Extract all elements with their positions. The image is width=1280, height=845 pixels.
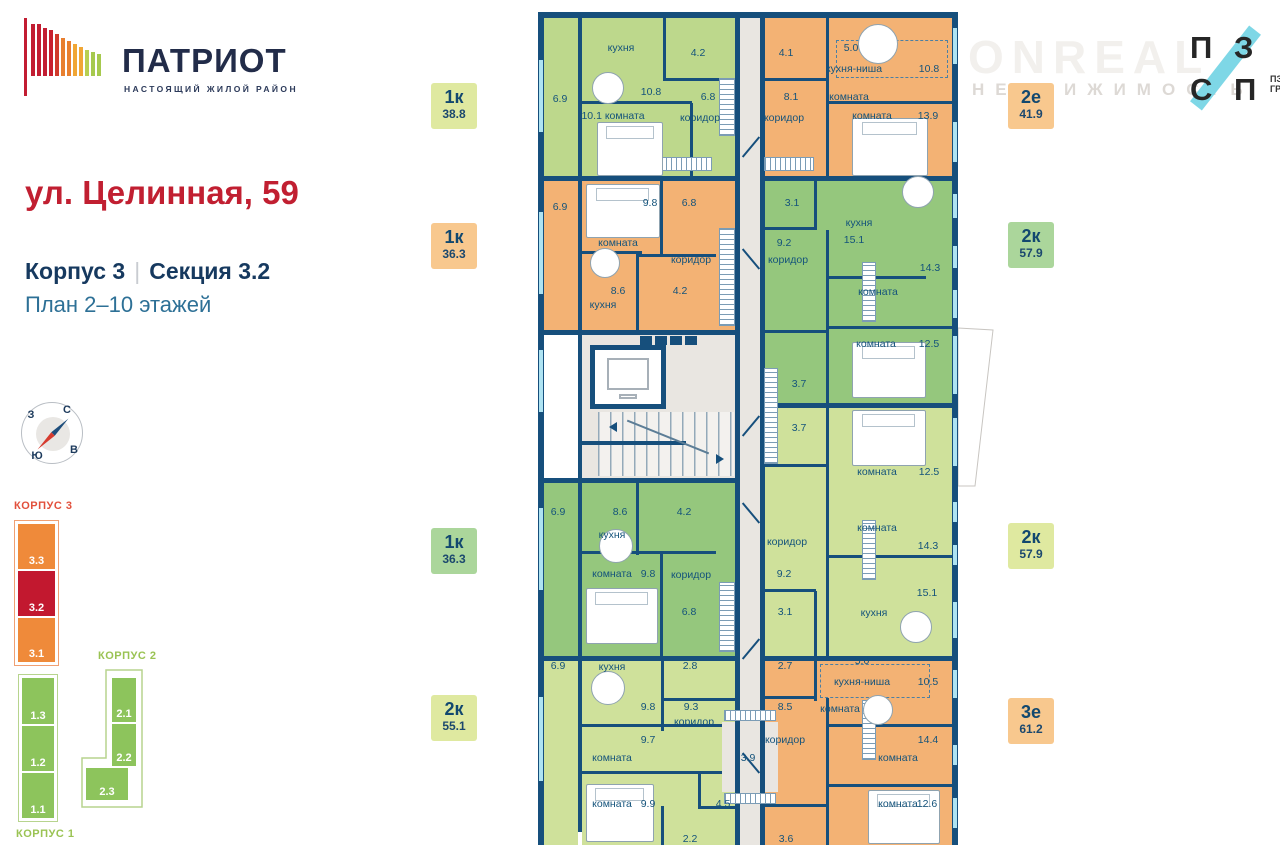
room-label: кухня-ниша: [834, 677, 890, 688]
apartment-area: 36.3: [431, 552, 477, 566]
room-label: 6.9: [551, 507, 566, 518]
wardrobe-hatch: [719, 228, 735, 326]
wall: [660, 176, 663, 256]
furniture-bed: [852, 118, 928, 176]
logo-letter-p1: П: [1190, 32, 1212, 63]
room-label: 9.2: [777, 569, 792, 580]
room-label: 14.3: [918, 541, 938, 552]
room-label: комната: [856, 339, 896, 350]
room-label: коридор: [671, 570, 711, 581]
wall: [661, 698, 737, 701]
room-label: 10.5: [918, 677, 938, 688]
furniture-table: [590, 248, 620, 278]
room-label: 9.8: [643, 198, 658, 209]
room-label: 3.7: [792, 379, 807, 390]
wall: [814, 661, 817, 701]
room-label: 15.1: [917, 588, 937, 599]
apartment-area: 38.8: [431, 107, 477, 121]
window: [953, 502, 957, 522]
apartment-area: 41.9: [1008, 107, 1054, 121]
wall: [762, 589, 816, 592]
wall: [829, 724, 952, 727]
room-label: коридор: [671, 255, 711, 266]
apartment-type: 2к: [1008, 528, 1054, 547]
wardrobe-hatch: [724, 710, 776, 721]
stair-core: [582, 335, 735, 478]
wall: [544, 176, 738, 181]
room-label: 8.1: [784, 92, 799, 103]
apartment-type: 3е: [1008, 703, 1054, 722]
room-label: 9.8: [641, 569, 656, 580]
logo-caption-line2: ГРУПП: [1270, 84, 1280, 94]
logo-letter-s: С: [1190, 74, 1212, 105]
window: [953, 28, 957, 64]
logo-letter-z: З: [1234, 32, 1253, 63]
apartment-badge-2e-41.9: 2е 41.9: [1008, 83, 1054, 129]
room-label: 9.2: [777, 238, 792, 249]
room-label: комната: [592, 799, 632, 810]
room-label: коридор: [767, 537, 807, 548]
room-label: 9.7: [641, 735, 656, 746]
wardrobe-hatch: [719, 78, 735, 136]
room-label: 15.1: [844, 235, 864, 246]
wall: [578, 18, 582, 832]
window: [953, 194, 957, 218]
wall: [544, 656, 738, 661]
room-label: 6.8: [682, 198, 697, 209]
apartment-type: 1к: [431, 228, 477, 247]
room-label: комната: [857, 467, 897, 478]
room-label: кухня: [608, 43, 635, 54]
room-label: комната: [878, 753, 918, 764]
logo-caption-line1: ПЗСП: [1270, 74, 1280, 84]
room-label: коридор: [674, 717, 714, 728]
wall: [538, 12, 958, 18]
apartment-badge-2k-57.9b: 2к 57.9: [1008, 523, 1054, 569]
room-label: комната: [852, 111, 892, 122]
room-label: 3.7: [792, 423, 807, 434]
room-label: 6.9: [553, 202, 568, 213]
room-label: 4.1: [779, 48, 794, 59]
apartment-type: 1к: [431, 533, 477, 552]
room-label: 14.3: [920, 263, 940, 274]
window: [953, 798, 957, 828]
wall: [762, 804, 828, 807]
wall: [661, 806, 664, 845]
apartment-area: 57.9: [1008, 547, 1054, 561]
room-label: коридор: [765, 735, 805, 746]
room-label: 6.8: [701, 92, 716, 103]
floor-plan-page: ONREAL НЕДВИЖИМОСТЬ ПАТРИОТ НАСТОЯЩИЙ ЖИ…: [0, 0, 1280, 845]
room-label: комната: [878, 799, 918, 810]
wall: [814, 176, 817, 230]
room-label: 13.9: [918, 111, 938, 122]
furniture-bed: [852, 410, 926, 466]
apartment-badge-1k-36.3b: 1к 36.3: [431, 528, 477, 574]
room-label: коридор: [764, 113, 804, 124]
wall: [814, 591, 817, 656]
wall: [829, 784, 952, 787]
wardrobe-hatch: [764, 368, 778, 464]
wall: [829, 276, 926, 279]
furniture-table: [902, 176, 934, 208]
furniture-table: [863, 695, 893, 725]
room-label: кухня: [846, 218, 873, 229]
apartment-area: 57.9: [1008, 246, 1054, 260]
wall: [636, 551, 716, 554]
room-label: 12.5: [919, 339, 939, 350]
wall: [544, 478, 738, 483]
room-label: 2.8: [683, 661, 698, 672]
room-label: 3.9: [741, 753, 756, 764]
window: [539, 212, 543, 294]
room-label: 5.0: [844, 43, 859, 54]
partner-logo: П З С П ПЗСП ГРУПП: [1188, 26, 1280, 110]
furniture-bed: [852, 342, 926, 398]
room-label: комната: [592, 753, 632, 764]
wall: [762, 227, 816, 230]
room-label: кухня: [599, 662, 626, 673]
room-label: комната: [598, 238, 638, 249]
furniture-bed: [586, 184, 660, 238]
window: [539, 508, 543, 590]
apartment-badge-2k-57.9: 2к 57.9: [1008, 222, 1054, 268]
room-label: 9.3: [684, 702, 699, 713]
room-label: 4.2: [691, 48, 706, 59]
furniture-bed: [597, 122, 663, 176]
room-label: комната: [592, 569, 632, 580]
room-label: 4.5: [716, 799, 731, 810]
wall: [762, 78, 828, 81]
room-label: 8.6: [613, 507, 628, 518]
furniture-table: [591, 671, 625, 705]
wardrobe-hatch: [660, 157, 712, 171]
room-label: 8.6: [611, 286, 626, 297]
window: [539, 350, 543, 412]
wall: [661, 661, 664, 731]
window: [953, 336, 957, 394]
window: [953, 545, 957, 565]
room-label: комната: [820, 704, 860, 715]
window: [539, 697, 543, 781]
window: [953, 602, 957, 638]
wall: [698, 773, 701, 809]
room-label: 3.1: [785, 198, 800, 209]
room-label: кухня: [590, 300, 617, 311]
window: [953, 418, 957, 466]
wardrobe-hatch: [719, 582, 735, 652]
wall: [829, 555, 952, 558]
window: [953, 246, 957, 268]
room-label: 8.5: [778, 702, 793, 713]
wall: [663, 18, 666, 80]
room-label: комната: [829, 92, 869, 103]
apartment-area: 36.3: [431, 247, 477, 261]
wall: [826, 466, 829, 656]
wall: [660, 554, 663, 656]
room-label: 10.1 комната: [581, 111, 644, 122]
furniture-bed: [586, 784, 654, 842]
furniture-table: [592, 72, 624, 104]
apartment-badge-2k-55.1: 2к 55.1: [431, 695, 477, 741]
wall: [829, 326, 952, 329]
wall: [636, 256, 639, 332]
wall: [544, 330, 738, 335]
room-label: 4.2: [673, 286, 688, 297]
window: [953, 290, 957, 318]
apartment-area: 61.2: [1008, 722, 1054, 736]
room-label: комната: [857, 523, 897, 534]
room-label: коридор: [680, 113, 720, 124]
room-label: 6.8: [682, 607, 697, 618]
room-label: 12.6: [917, 799, 937, 810]
apartment-type: 2е: [1008, 88, 1054, 107]
room-label: 10.8: [641, 87, 661, 98]
window: [953, 670, 957, 698]
room-label: 4.2: [677, 507, 692, 518]
wall: [762, 464, 828, 467]
room-label: 3.6: [779, 834, 794, 845]
wall: [762, 696, 816, 699]
wardrobe-hatch: [764, 157, 814, 171]
room-label: 14.4: [918, 735, 938, 746]
wall: [826, 698, 829, 845]
room-label: 3.1: [778, 607, 793, 618]
window: [953, 745, 957, 765]
furniture-table: [858, 24, 898, 64]
wall: [762, 403, 958, 408]
furniture-bed: [586, 588, 658, 644]
room-label: кухня: [861, 608, 888, 619]
room-label: 2.7: [778, 661, 793, 672]
balcony-6.9: [544, 661, 578, 845]
logo-letter-p2: П: [1234, 74, 1256, 105]
apartment-badge-3e-61.2: 3е 61.2: [1008, 698, 1054, 744]
room-label: комната: [858, 287, 898, 298]
wall: [826, 330, 829, 466]
wardrobe-hatch: [724, 793, 776, 804]
room-label: 9.9: [641, 799, 656, 810]
apartment-area: 55.1: [431, 719, 477, 733]
room-label: 2.2: [683, 834, 698, 845]
floor-plan: 6.9кухня10.84.26.8коридор10.1 комната4.1…: [0, 0, 1280, 845]
wall: [582, 771, 722, 774]
window: [953, 122, 957, 162]
room-label: 10.8: [919, 64, 939, 75]
furniture-table: [900, 611, 932, 643]
logo-caption: ПЗСП ГРУПП: [1270, 74, 1280, 95]
room-label: 9.8: [641, 702, 656, 713]
room-label: 12.5: [919, 467, 939, 478]
room-label: 6.9: [551, 661, 566, 672]
wall: [636, 483, 639, 555]
window: [539, 60, 543, 132]
room-label: кухня: [599, 530, 626, 541]
room-label: кухня-ниша: [826, 64, 882, 75]
apartment-type: 2к: [1008, 227, 1054, 246]
wall: [762, 330, 828, 333]
apartment-type: 1к: [431, 88, 477, 107]
room-label: коридор: [768, 255, 808, 266]
apartment-type: 2к: [431, 700, 477, 719]
apartment-badge-1k-38.8: 1к 38.8: [431, 83, 477, 129]
apartment-badge-1k-36.3: 1к 36.3: [431, 223, 477, 269]
room-label: 6.9: [553, 94, 568, 105]
room-label: 5.0: [855, 656, 870, 667]
